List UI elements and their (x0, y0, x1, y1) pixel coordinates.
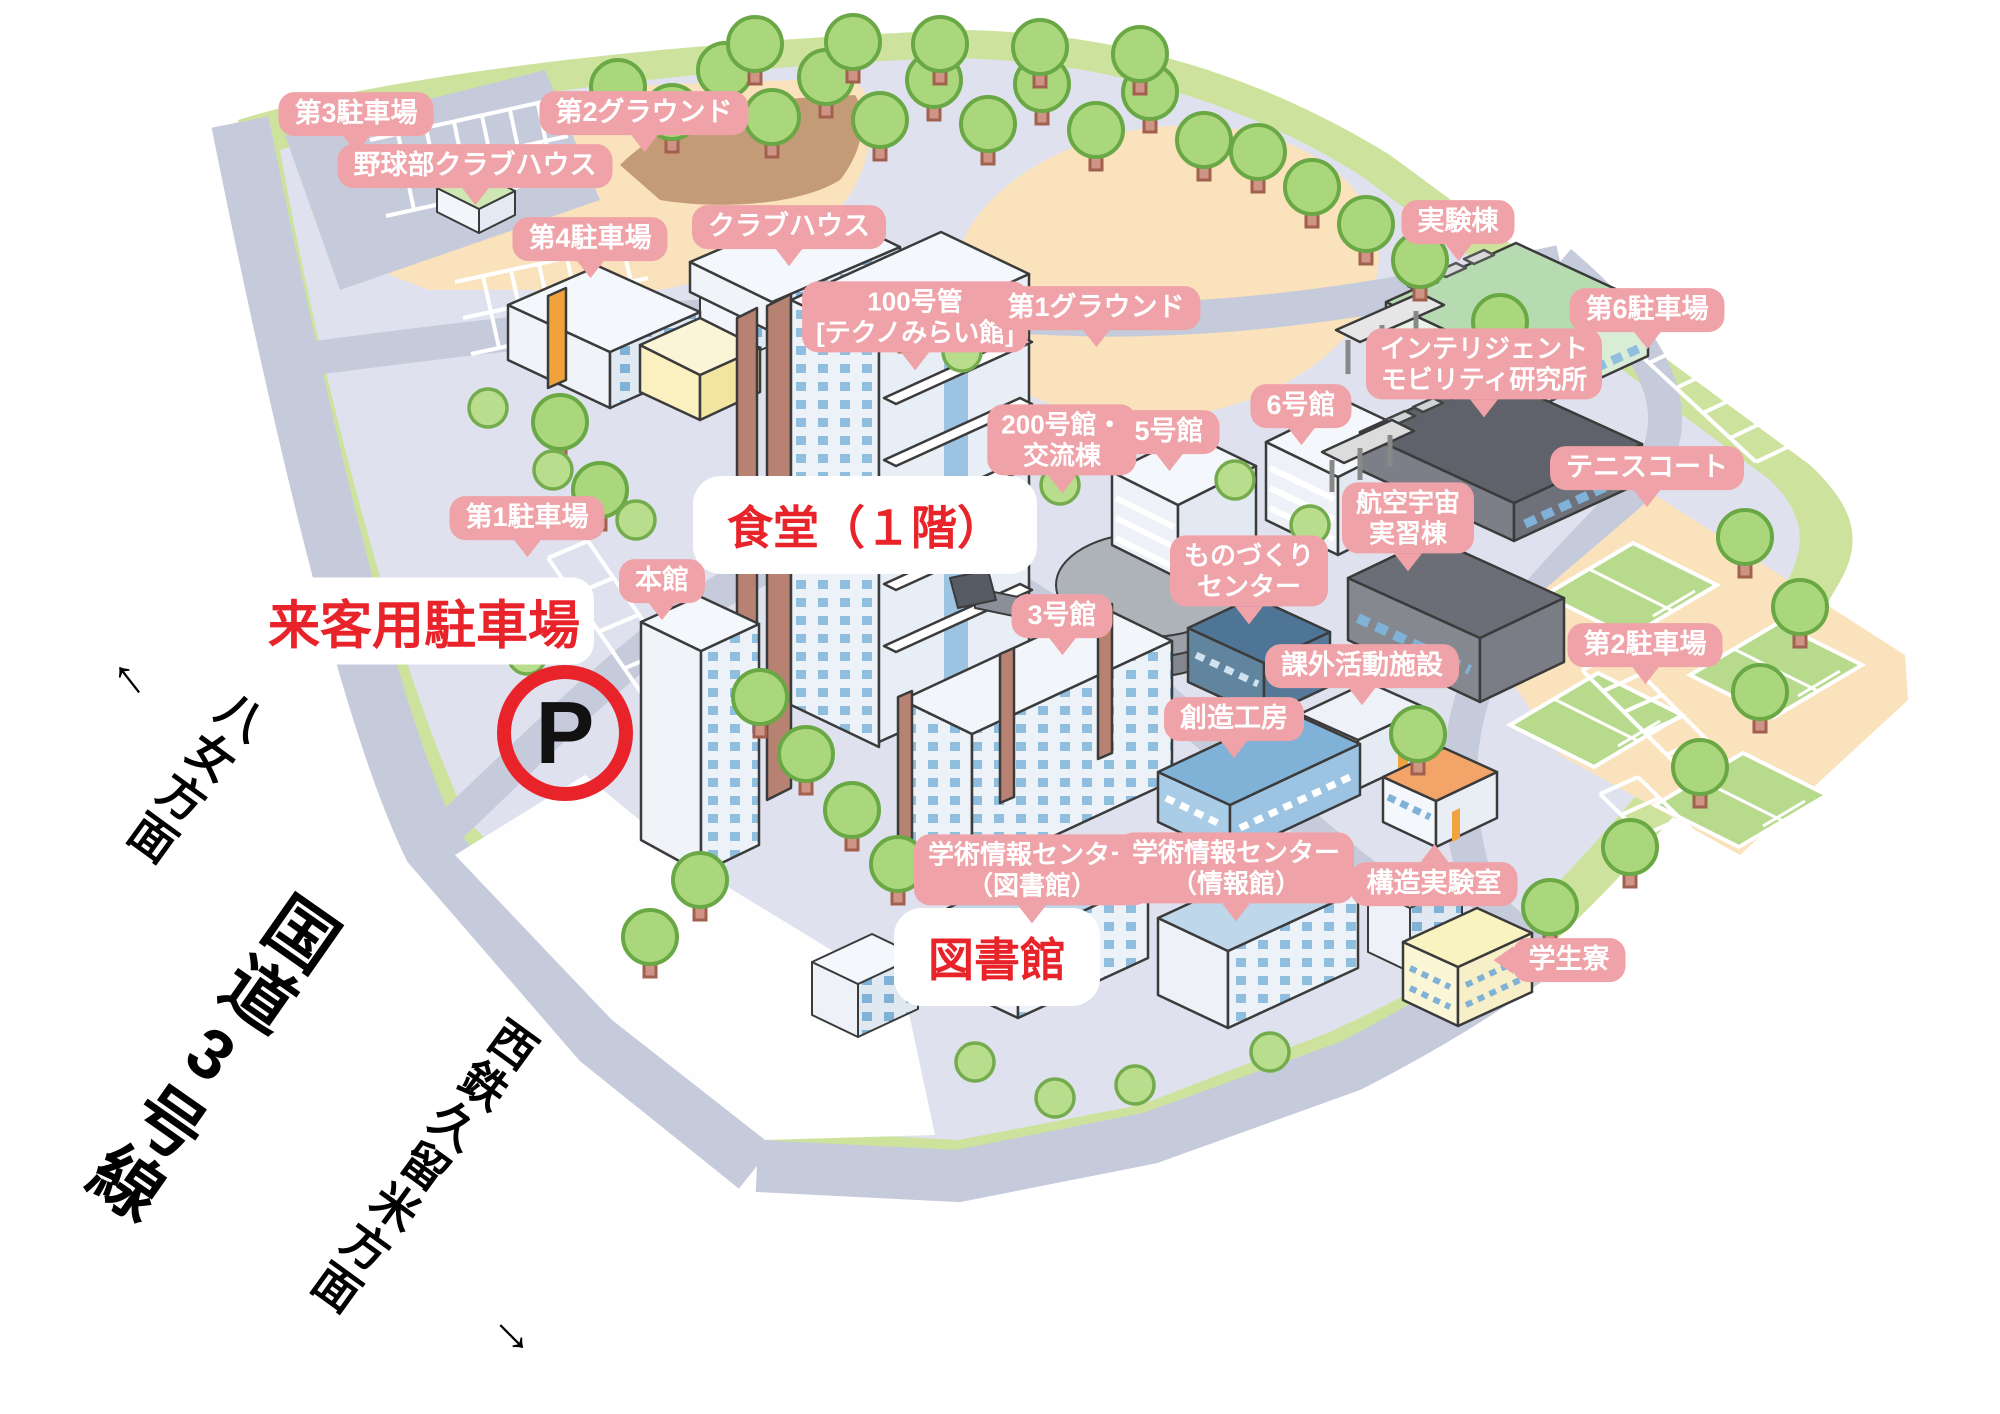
highlight-toshokan: 図書館 (894, 908, 1100, 1006)
label-kozo-jikken: 構造実験室 (1351, 862, 1518, 906)
label-dai4-parking: 第4駐車場 (512, 217, 667, 261)
label-dai6-parking: 第6駐車場 (1569, 288, 1724, 332)
campus-map: 食堂（１階） 図書館 来客用駐車場 P ↑ 八女方面 国道3号線 西鉄久留米方面… (0, 0, 2000, 1414)
label-dai1-parking: 第1駐車場 (449, 496, 604, 540)
visitor-parking-icon: P (497, 665, 633, 801)
label-building-5: 5号館 (1118, 410, 1219, 454)
label-tennis-court: テニスコート (1550, 446, 1744, 490)
label-dai2-ground: 第2グラウンド (539, 91, 748, 135)
label-dai1-ground: 第1グラウンド (991, 286, 1200, 330)
label-kokuuchu: 航空宇宙実習棟 (1342, 482, 1474, 553)
label-gakusei-ryo: 学生寮 (1513, 938, 1626, 982)
label-kagai-katsudo: 課外活動施設 (1265, 644, 1459, 688)
label-jikkento: 実験棟 (1402, 200, 1515, 244)
map-artwork (0, 0, 2000, 1414)
label-building-3: 3号館 (1011, 594, 1112, 638)
label-souzou-kobo: 創造工房 (1164, 697, 1304, 741)
label-monozukuri-center: ものづくりセンター (1170, 535, 1328, 606)
label-gakujutsu-johokan: 学術情報センター（情報館） (1118, 832, 1354, 903)
label-gakujutsu-toshokan: 学術情報センター（図書館） (914, 834, 1150, 905)
label-intelligent-mobility: インテリジェントモビリティ研究所 (1366, 328, 1602, 399)
building-honkan (641, 596, 759, 873)
highlight-raikyaku-parking: 来客用駐車場 (254, 578, 594, 665)
label-honkan: 本館 (619, 559, 705, 603)
label-dai3-parking: 第3駐車場 (278, 92, 433, 136)
label-clubhouse: クラブハウス (692, 205, 886, 249)
label-building-200: 200号館・交流棟 (987, 404, 1136, 475)
label-dai2-parking: 第2駐車場 (1567, 623, 1722, 667)
label-yakyubu-clubhouse: 野球部クラブハウス (338, 144, 613, 188)
highlight-shokudo: 食堂（１階） (693, 476, 1037, 574)
label-building-6: 6号館 (1250, 384, 1351, 428)
